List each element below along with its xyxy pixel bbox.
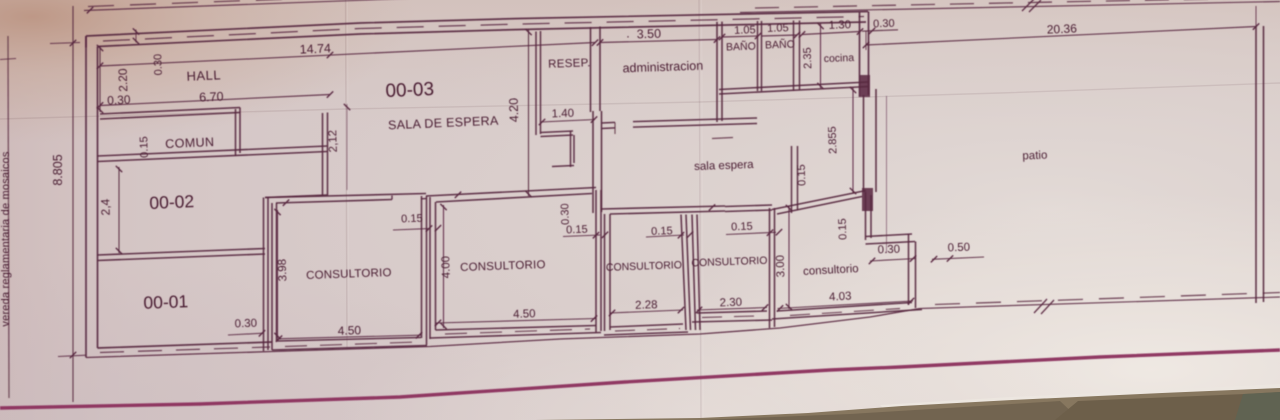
svg-text:0.15: 0.15 — [138, 136, 151, 158]
svg-text:2.35: 2.35 — [802, 47, 815, 69]
svg-text:administracion: administracion — [622, 59, 703, 76]
svg-text:00-02: 00-02 — [149, 191, 195, 213]
svg-text:RESEP.: RESEP. — [548, 57, 591, 70]
svg-text:0.15: 0.15 — [837, 218, 850, 240]
svg-text:0.30: 0.30 — [873, 18, 895, 31]
svg-text:sala espera: sala espera — [694, 159, 754, 173]
svg-text:0.50: 0.50 — [947, 242, 970, 255]
svg-text:0.15: 0.15 — [566, 224, 588, 237]
svg-text:4.50: 4.50 — [337, 323, 361, 338]
svg-text:cocina: cocina — [824, 52, 855, 65]
svg-text:2.28: 2.28 — [635, 299, 658, 312]
svg-text:0.15: 0.15 — [401, 213, 423, 226]
svg-text:1.05: 1.05 — [734, 24, 756, 37]
svg-text:20.36: 20.36 — [1047, 21, 1078, 36]
svg-text:3.00: 3.00 — [775, 255, 788, 278]
svg-text:0.30: 0.30 — [877, 244, 900, 257]
svg-text:3.98: 3.98 — [277, 259, 290, 282]
svg-text:6.70: 6.70 — [199, 89, 224, 104]
svg-text:vereda reglamentaria de mosaic: vereda reglamentaria de mosaicos — [0, 151, 12, 326]
svg-text:14.74: 14.74 — [299, 41, 331, 56]
svg-text:4.20: 4.20 — [507, 98, 522, 123]
svg-text:3.50: 3.50 — [636, 27, 661, 42]
svg-text:COMUN: COMUN — [165, 135, 215, 151]
svg-text:0.30: 0.30 — [152, 54, 165, 76]
svg-text:BAÑO: BAÑO — [765, 37, 795, 51]
svg-text:4.03: 4.03 — [829, 290, 852, 303]
svg-text:0.15: 0.15 — [796, 164, 809, 186]
svg-text:2.855: 2.855 — [827, 126, 840, 154]
svg-text:4.00: 4.00 — [440, 256, 453, 279]
svg-text:HALL: HALL — [186, 67, 221, 83]
svg-text:0.15: 0.15 — [731, 221, 753, 234]
svg-text:00-03: 00-03 — [385, 79, 434, 102]
svg-text:2,12: 2,12 — [327, 130, 340, 153]
svg-text:00-01: 00-01 — [143, 291, 188, 313]
svg-text:2,4: 2,4 — [98, 198, 113, 215]
svg-text:8.805: 8.805 — [51, 154, 65, 185]
svg-text:0.30: 0.30 — [559, 203, 572, 225]
svg-text:1.30: 1.30 — [828, 19, 851, 32]
svg-text:0.30: 0.30 — [234, 318, 257, 331]
svg-text:2.20: 2.20 — [116, 68, 131, 92]
svg-text:BAÑO: BAÑO — [726, 39, 756, 53]
svg-text:1.40: 1.40 — [551, 108, 574, 121]
svg-text:patio: patio — [1022, 150, 1047, 163]
svg-text:·: · — [626, 29, 630, 43]
svg-text:1.05: 1.05 — [767, 22, 789, 35]
svg-text:2.30: 2.30 — [719, 297, 742, 310]
svg-text:4.50: 4.50 — [513, 308, 536, 321]
